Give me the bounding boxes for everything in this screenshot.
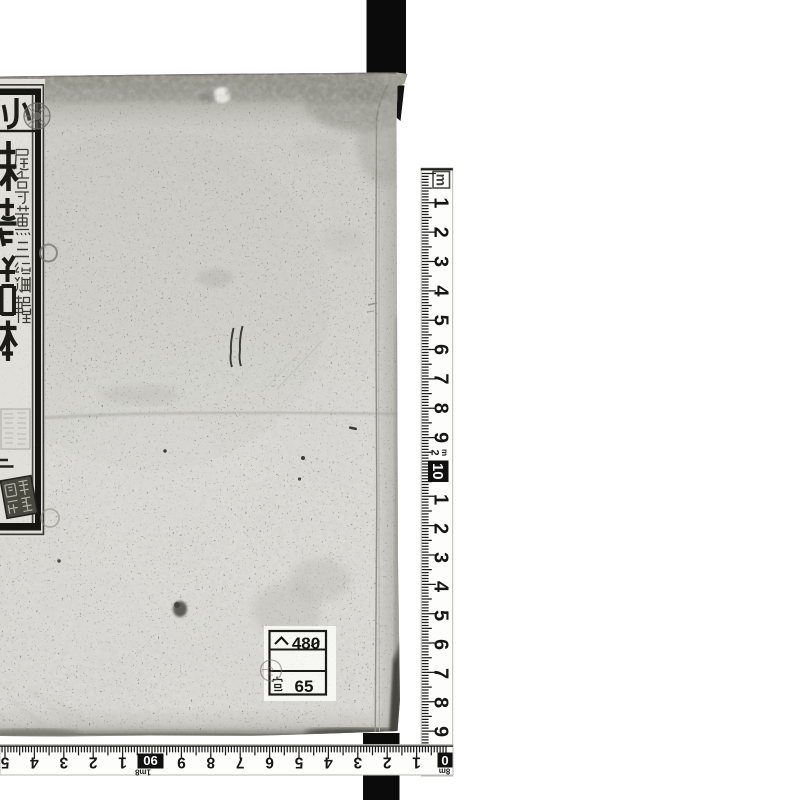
svg-text:6: 6 [430, 639, 452, 650]
svg-text:2: 2 [430, 227, 452, 238]
svg-text:65: 65 [295, 677, 314, 696]
svg-text:5: 5 [430, 315, 452, 326]
svg-text:2: 2 [267, 665, 274, 679]
svg-text:7: 7 [430, 668, 452, 679]
svg-text:2: 2 [89, 754, 98, 771]
svg-text:0: 0 [441, 753, 448, 768]
svg-text:90: 90 [143, 753, 157, 768]
svg-text:4: 4 [430, 285, 452, 297]
svg-text:9: 9 [430, 432, 452, 443]
svg-text:8: 8 [430, 697, 452, 708]
svg-text:5: 5 [430, 610, 452, 621]
svg-text:4: 4 [430, 581, 452, 593]
svg-text:2: 2 [383, 754, 392, 771]
svg-text:1: 1 [412, 754, 421, 771]
svg-text:9: 9 [430, 726, 452, 737]
svg-text:9: 9 [177, 754, 186, 771]
svg-text:1: 1 [430, 197, 452, 208]
svg-text:5: 5 [294, 754, 303, 771]
svg-text:10: 10 [429, 463, 446, 480]
svg-text:5: 5 [0, 754, 9, 771]
svg-text:3: 3 [430, 552, 452, 563]
svg-text:3: 3 [430, 256, 452, 267]
svg-text:4: 4 [324, 754, 333, 771]
svg-text:8: 8 [206, 754, 215, 771]
svg-text:4: 4 [30, 754, 39, 771]
svg-text:1: 1 [118, 754, 127, 771]
svg-text:3: 3 [353, 754, 362, 771]
svg-text:7: 7 [236, 754, 245, 771]
svg-text:6: 6 [265, 754, 274, 771]
svg-text:2: 2 [429, 449, 441, 455]
svg-text:3: 3 [59, 754, 68, 771]
svg-text:1m8: 1m8 [134, 768, 151, 777]
svg-text:8m: 8m [439, 767, 451, 776]
svg-text:m: m [433, 174, 449, 186]
svg-text:6: 6 [430, 344, 452, 355]
svg-text:1: 1 [430, 494, 452, 505]
svg-text:m: m [440, 449, 449, 456]
svg-text:8: 8 [430, 403, 452, 414]
svg-text:7: 7 [430, 373, 452, 384]
svg-text:2: 2 [430, 523, 452, 534]
